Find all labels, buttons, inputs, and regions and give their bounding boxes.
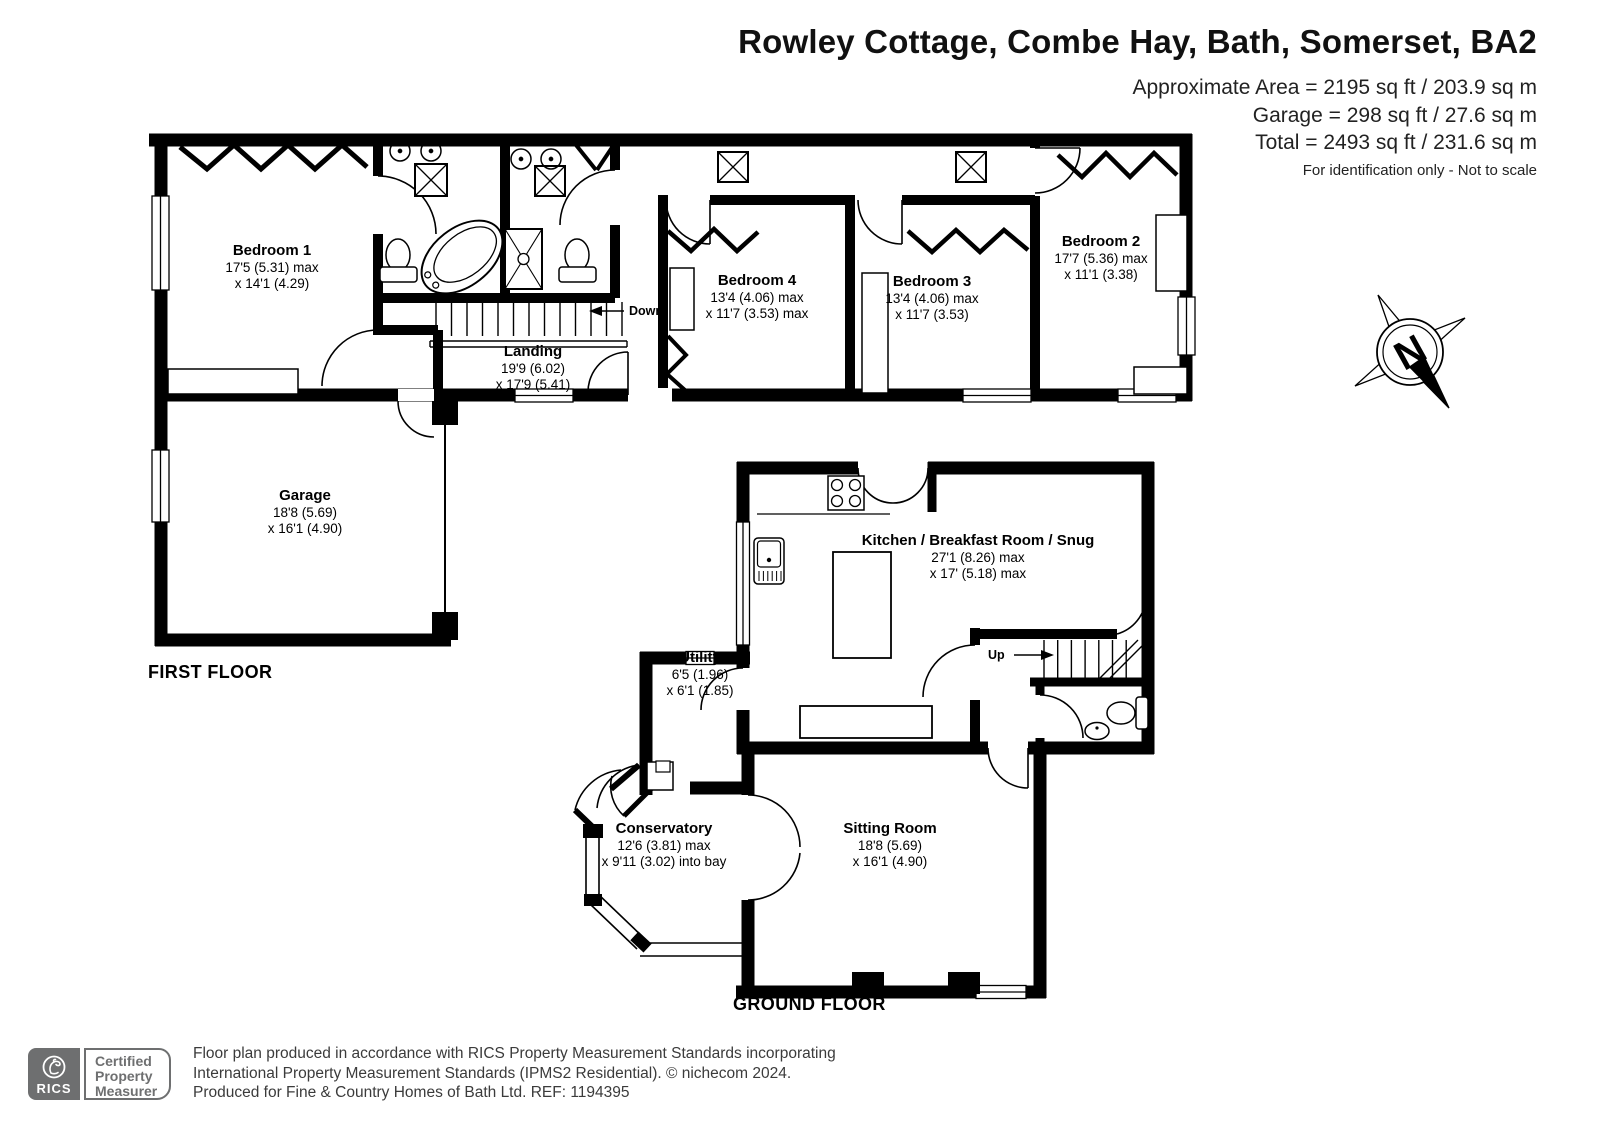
first-floor-stairs [430,302,627,347]
basin-icon [1085,723,1109,740]
bathtub-icon [408,206,516,308]
snug-sofa [800,706,932,738]
room-label-landing: Landing 19'9 (6.02) x 17'9 (5.41) [496,343,571,393]
kitchen-fixtures [754,476,932,738]
footer-line-1: Floor plan produced in accordance with R… [193,1044,836,1064]
rics-lion-icon [39,1054,69,1082]
floorplan-page: N Rowley Cottage, Combe Hay, Bath, Somer… [0,0,1599,1131]
certified-property-measurer-badge: Certified Property Measurer [84,1048,171,1100]
approximate-area: Approximate Area = 2195 sq ft / 203.9 sq… [738,74,1537,101]
room-label-bedroom4: Bedroom 4 13'4 (4.06) max x 11'7 (3.53) … [706,272,809,322]
page-title: Rowley Cottage, Combe Hay, Bath, Somerse… [738,24,1537,60]
porch [647,761,673,790]
ground-floor-caption: GROUND FLOOR [733,994,886,1015]
wc-fixtures [1085,697,1148,740]
bathroom-fixtures [380,206,596,308]
footer-line-3: Produced for Fine & Country Homes of Bat… [193,1083,836,1103]
footer-text: Floor plan produced in accordance with R… [193,1044,836,1103]
header: Rowley Cottage, Combe Hay, Bath, Somerse… [738,24,1537,179]
up-arrow-icon [1014,650,1054,660]
room-label-bedroom1: Bedroom 1 17'5 (5.31) max x 14'1 (4.29) [225,242,318,292]
rics-logo: RICS [28,1048,80,1100]
toilet-icon [1107,697,1148,729]
ground-floor-stairs [1014,640,1148,682]
room-label-kitchen: Kitchen / Breakfast Room / Snug 27'1 (8.… [862,532,1095,582]
room-label-conservatory: Conservatory 12'6 (3.81) max x 9'11 (3.0… [602,820,727,870]
stairs-up-label: Up [988,648,1005,662]
kitchen-sink-icon [754,538,784,584]
toilet-icon [380,239,417,282]
garage-area: Garage = 298 sq ft / 27.6 sq m [738,102,1537,129]
total-area: Total = 2493 sq ft / 231.6 sq m [738,129,1537,156]
room-label-sitting-room: Sitting Room 18'8 (5.69) x 16'1 (4.90) [843,820,936,870]
footer-line-2: International Property Measurement Stand… [193,1064,836,1084]
stairs-down-label: Down [629,304,663,318]
shower-icon [505,229,542,289]
room-label-bedroom3: Bedroom 3 13'4 (4.06) max x 11'7 (3.53) [885,273,978,323]
first-floor-caption: FIRST FLOOR [148,662,272,683]
room-label-garage: Garage 18'8 (5.69) x 16'1 (4.90) [268,487,343,537]
room-label-utility: Utility 6'5 (1.96) x 6'1 (1.85) [666,649,733,699]
cooktop-icon [828,476,864,510]
toilet-icon [559,239,596,282]
disclaimer: For identification only - Not to scale [738,162,1537,179]
room-label-bedroom2: Bedroom 2 17'7 (5.36) max x 11'1 (3.38) [1054,233,1147,283]
compass-icon: N [1355,295,1465,408]
